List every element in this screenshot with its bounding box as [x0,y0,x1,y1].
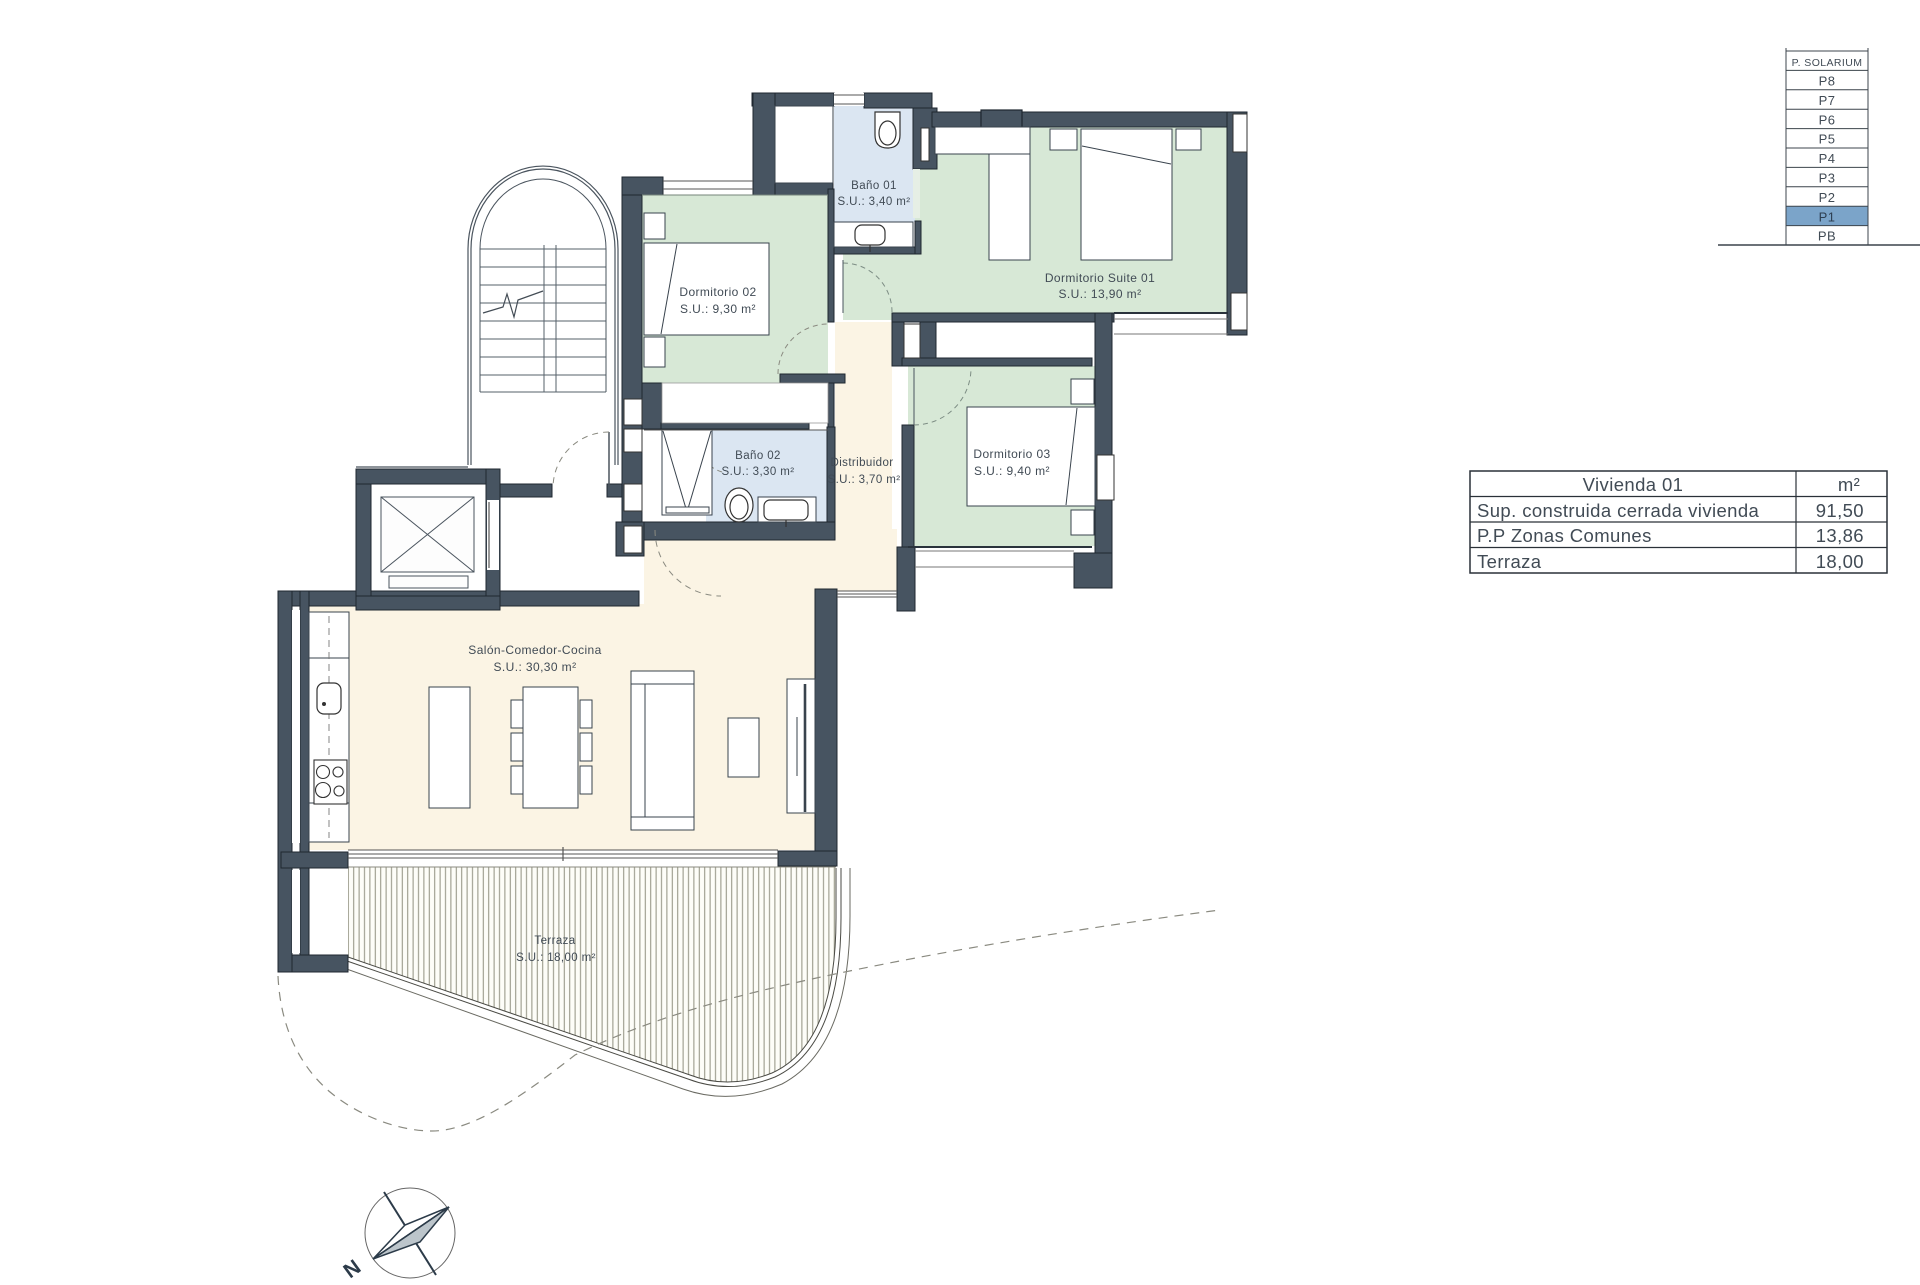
svg-text:P4: P4 [1819,151,1836,166]
svg-text:P5: P5 [1819,132,1836,147]
svg-text:18,00: 18,00 [1816,551,1864,572]
svg-text:S.U.: 18,00 m²: S.U.: 18,00 m² [516,952,596,964]
svg-text:PB: PB [1818,229,1836,244]
svg-text:S.U.: 3,70 m²: S.U.: 3,70 m² [828,474,901,486]
svg-text:S.U.: 13,90 m²: S.U.: 13,90 m² [1059,287,1142,301]
svg-text:S.U.: 3,30 m²: S.U.: 3,30 m² [722,466,795,478]
svg-text:Baño 02: Baño 02 [735,450,781,462]
svg-text:Dormitorio 03: Dormitorio 03 [973,447,1050,461]
svg-text:Salón-Comedor-Cocina: Salón-Comedor-Cocina [468,643,601,657]
svg-text:S.U.: 3,40 m²: S.U.: 3,40 m² [838,196,911,208]
svg-text:Sup. construida cerrada vivien: Sup. construida cerrada vivienda [1477,500,1760,521]
svg-text:13,86: 13,86 [1816,525,1864,546]
svg-text:P. SOLARIUM: P. SOLARIUM [1792,57,1863,69]
svg-text:P6: P6 [1819,112,1836,127]
svg-text:P8: P8 [1819,74,1836,89]
svg-text:Baño 01: Baño 01 [851,180,897,192]
svg-text:91,50: 91,50 [1816,500,1864,521]
svg-text:Terraza: Terraza [534,935,575,947]
svg-text:Dormitorio Suite 01: Dormitorio Suite 01 [1045,271,1155,285]
svg-text:P2: P2 [1819,190,1836,205]
svg-text:m²: m² [1838,474,1860,495]
svg-text:P3: P3 [1819,171,1836,186]
svg-text:P.P Zonas Comunes: P.P Zonas Comunes [1477,525,1652,546]
svg-text:Terraza: Terraza [1477,551,1542,572]
svg-text:S.U.: 9,30 m²: S.U.: 9,30 m² [680,302,756,316]
svg-text:P1: P1 [1819,209,1836,224]
svg-text:Distribuidor: Distribuidor [831,457,894,469]
svg-text:Vivienda 01: Vivienda 01 [1583,474,1684,495]
svg-text:S.U.: 30,30 m²: S.U.: 30,30 m² [494,660,577,674]
svg-text:S.U.: 9,40 m²: S.U.: 9,40 m² [974,464,1050,478]
svg-text:P7: P7 [1819,93,1836,108]
svg-text:Dormitorio 02: Dormitorio 02 [679,285,756,299]
